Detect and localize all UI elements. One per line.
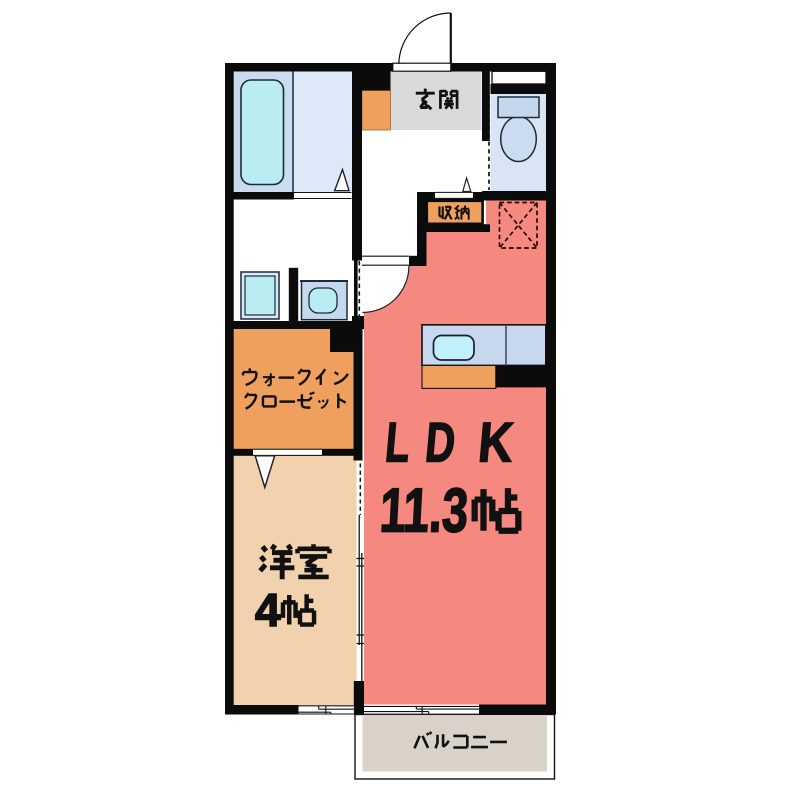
svg-text:K: K: [476, 412, 516, 474]
svg-text:11.3: 11.3: [378, 477, 470, 546]
svg-text:D: D: [423, 413, 458, 475]
svg-text:4: 4: [255, 584, 281, 636]
